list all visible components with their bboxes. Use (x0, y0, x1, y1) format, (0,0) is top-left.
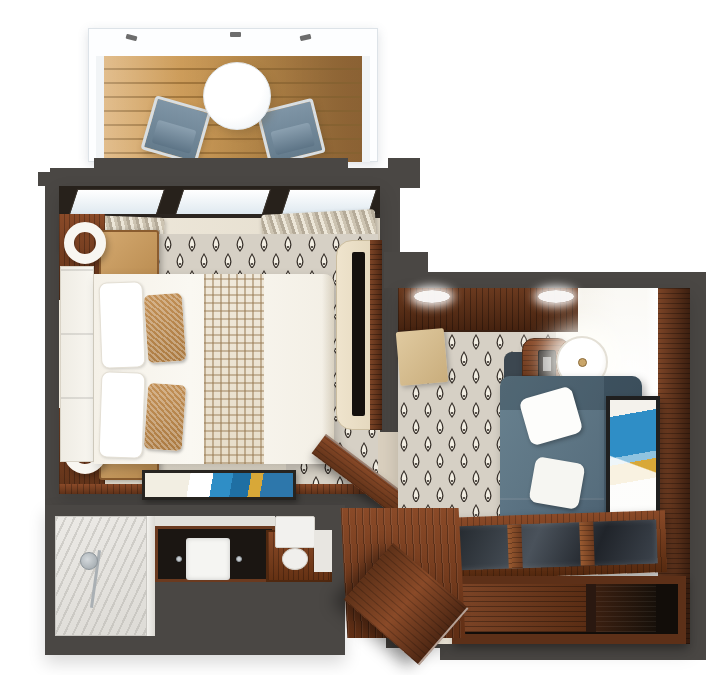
vanity-sink (186, 538, 230, 580)
faucet (176, 556, 182, 562)
glass-pane (69, 189, 165, 215)
bed-headboard (60, 266, 94, 462)
railing-clip (230, 32, 241, 37)
toilet-tank (275, 516, 315, 548)
coffee-table-rail (579, 522, 595, 566)
cabinet-shelf (460, 584, 586, 632)
glass-pane (175, 189, 271, 215)
bedroom-wall-left (45, 182, 59, 514)
media-cabinet (452, 576, 686, 644)
balcony-side-right (362, 56, 370, 162)
toilet-side-shelf (314, 530, 332, 572)
bed-plaid-runner (204, 274, 264, 464)
desk-phone-device (538, 350, 556, 378)
sofa-throw-pillow (528, 456, 585, 510)
lamp-finial (578, 358, 587, 367)
chair-seat (270, 122, 315, 155)
living-wall-step (384, 252, 428, 276)
balcony-round-table (203, 62, 271, 130)
bedroom-artwork (142, 470, 296, 500)
shower-glass-divider (147, 516, 155, 636)
bed-pillow (99, 371, 146, 458)
chair-seat (152, 120, 197, 154)
table-lamp-top (64, 222, 106, 264)
tv-cabinet-wood-trim (370, 240, 382, 430)
coffee-table (443, 510, 667, 580)
tan-bench (396, 328, 449, 386)
living-room-artwork (606, 396, 660, 518)
ceiling-light (414, 290, 450, 303)
bed-pillow (99, 281, 146, 368)
cabinet-compartment (596, 584, 656, 632)
shower (55, 516, 147, 636)
coffee-table-glass (452, 519, 657, 570)
toilet-bowl (282, 548, 308, 570)
living-wall-bottom (440, 644, 706, 660)
cabinet-divider (586, 584, 596, 632)
bedroom-wall-top (50, 168, 390, 186)
coffee-table-rail (507, 524, 523, 568)
living-wall-right (690, 272, 706, 660)
accent-pillow (144, 383, 187, 451)
faucet (236, 556, 242, 562)
floorplan-canvas (0, 0, 726, 675)
ceiling-light (538, 290, 574, 303)
living-wall-top (384, 272, 706, 288)
accent-pillow (144, 293, 187, 363)
bedroom-tv-screen (352, 252, 365, 416)
balcony-side-left (96, 56, 104, 162)
shower-head (80, 552, 98, 570)
